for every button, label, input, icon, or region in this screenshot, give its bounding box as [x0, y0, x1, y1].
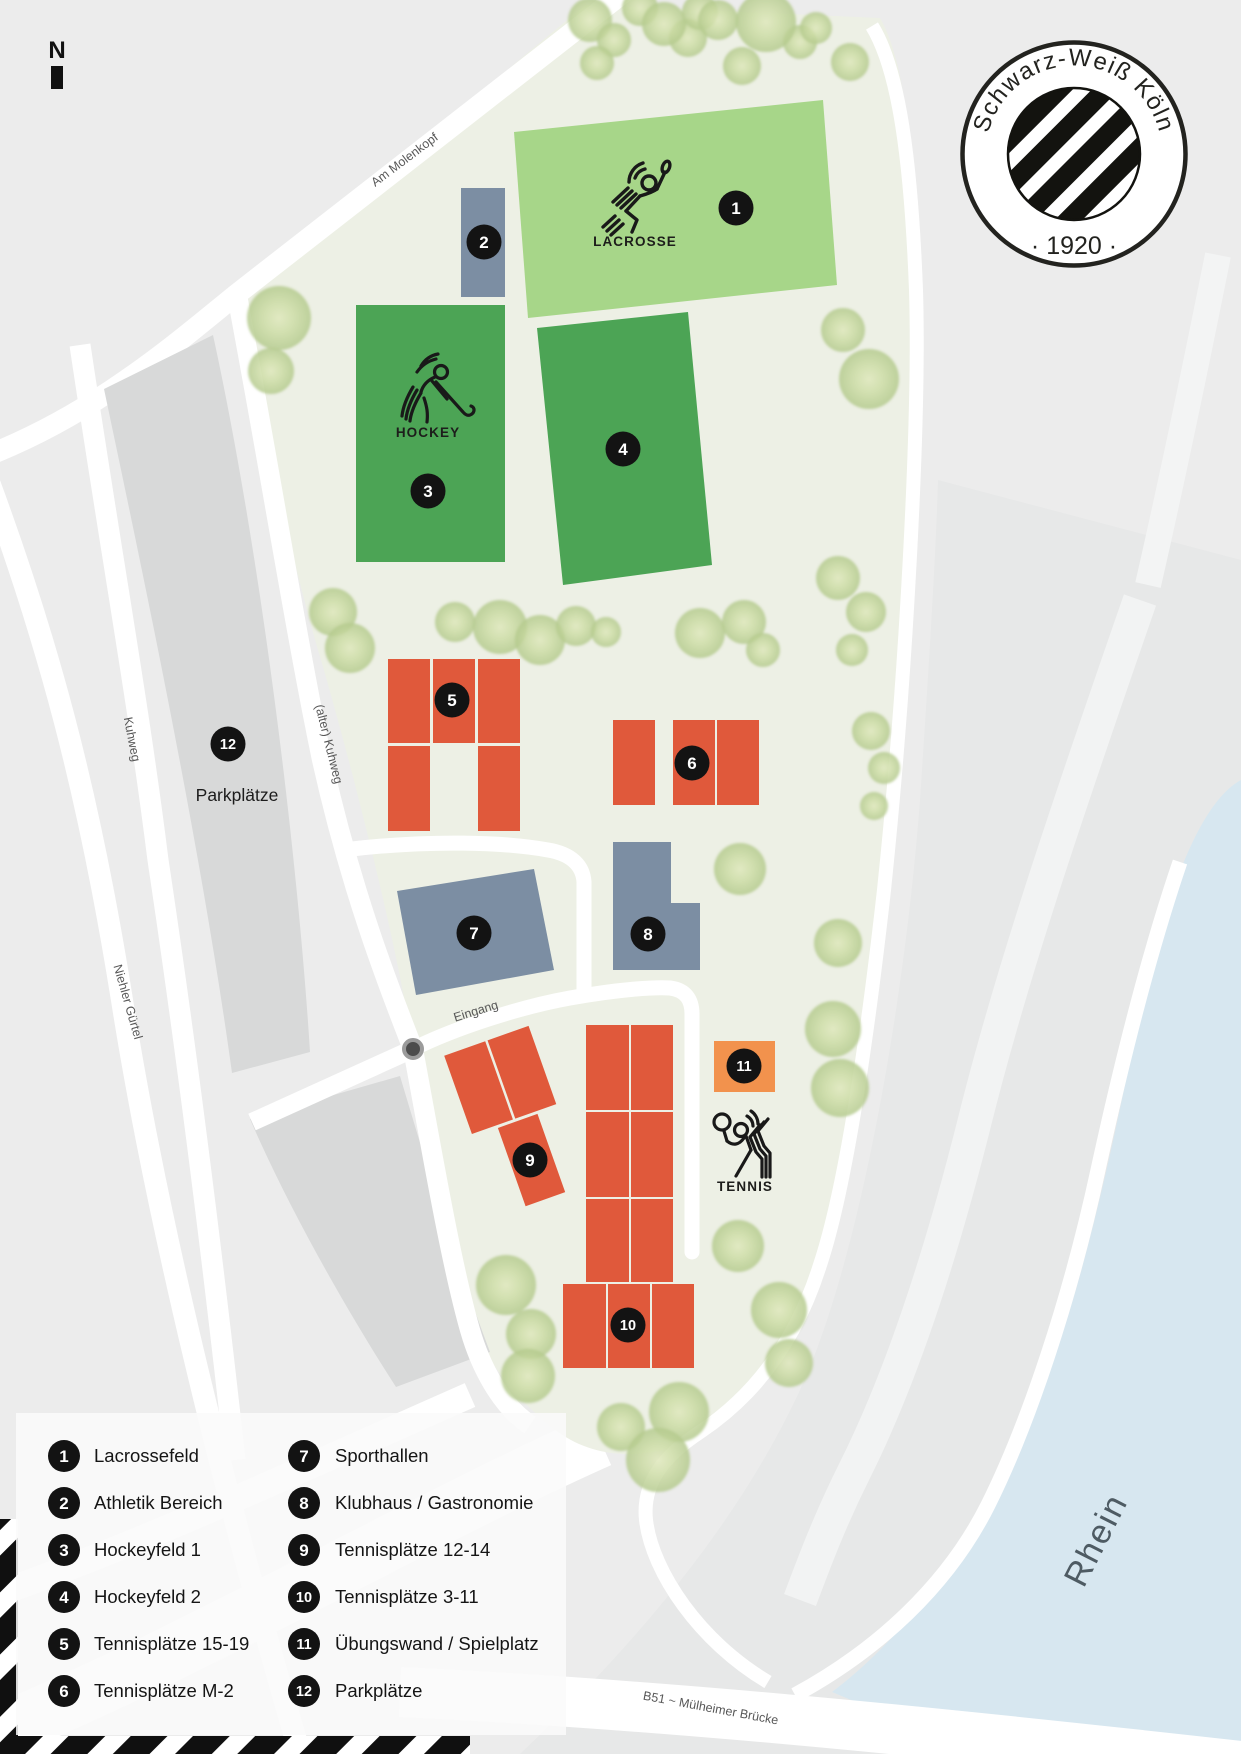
svg-text:2: 2 — [59, 1494, 68, 1513]
svg-text:1: 1 — [59, 1447, 68, 1466]
svg-text:Tennisplätze 12-14: Tennisplätze 12-14 — [335, 1539, 490, 1560]
svg-text:9: 9 — [525, 1151, 534, 1170]
svg-text:Athletik Bereich: Athletik Bereich — [94, 1492, 223, 1513]
svg-text:6: 6 — [59, 1682, 68, 1701]
svg-text:3: 3 — [59, 1541, 68, 1560]
svg-text:10: 10 — [620, 1318, 636, 1334]
svg-text:· 1920 ·: · 1920 · — [1031, 232, 1117, 260]
svg-text:TENNIS: TENNIS — [717, 1179, 773, 1194]
svg-text:Tennisplätze 3-11: Tennisplätze 3-11 — [335, 1586, 479, 1607]
svg-text:7: 7 — [299, 1447, 308, 1466]
svg-text:Lacrossefeld: Lacrossefeld — [94, 1445, 199, 1466]
svg-text:1: 1 — [731, 199, 740, 218]
svg-text:Parkplätze: Parkplätze — [196, 785, 279, 805]
svg-text:LACROSSE: LACROSSE — [593, 234, 677, 249]
svg-text:11: 11 — [296, 1637, 311, 1653]
svg-text:Tennisplätze 15-19: Tennisplätze 15-19 — [94, 1633, 249, 1654]
svg-text:9: 9 — [299, 1541, 308, 1560]
svg-text:Klubhaus / Gastronomie: Klubhaus / Gastronomie — [335, 1492, 533, 1513]
svg-text:N: N — [48, 37, 65, 64]
svg-text:2: 2 — [479, 233, 488, 252]
svg-text:Hockeyfeld 2: Hockeyfeld 2 — [94, 1586, 201, 1607]
svg-text:5: 5 — [447, 691, 456, 710]
svg-text:Parkplätze: Parkplätze — [335, 1680, 422, 1701]
svg-text:12: 12 — [296, 1684, 312, 1700]
svg-text:5: 5 — [59, 1635, 68, 1654]
svg-text:8: 8 — [643, 925, 652, 944]
svg-text:12: 12 — [220, 737, 236, 753]
svg-text:8: 8 — [299, 1494, 308, 1513]
svg-text:7: 7 — [469, 924, 478, 943]
svg-text:6: 6 — [687, 754, 696, 773]
svg-text:4: 4 — [618, 440, 628, 459]
svg-text:10: 10 — [296, 1590, 312, 1606]
svg-text:HOCKEY: HOCKEY — [396, 425, 460, 440]
svg-text:Tennisplätze M-2: Tennisplätze M-2 — [94, 1680, 234, 1701]
svg-text:11: 11 — [736, 1059, 751, 1075]
svg-text:3: 3 — [423, 482, 432, 501]
svg-text:Hockeyfeld 1: Hockeyfeld 1 — [94, 1539, 201, 1560]
svg-text:Sporthallen: Sporthallen — [335, 1445, 429, 1466]
svg-text:4: 4 — [59, 1588, 69, 1607]
svg-text:Übungswand / Spielplatz: Übungswand / Spielplatz — [335, 1633, 539, 1654]
